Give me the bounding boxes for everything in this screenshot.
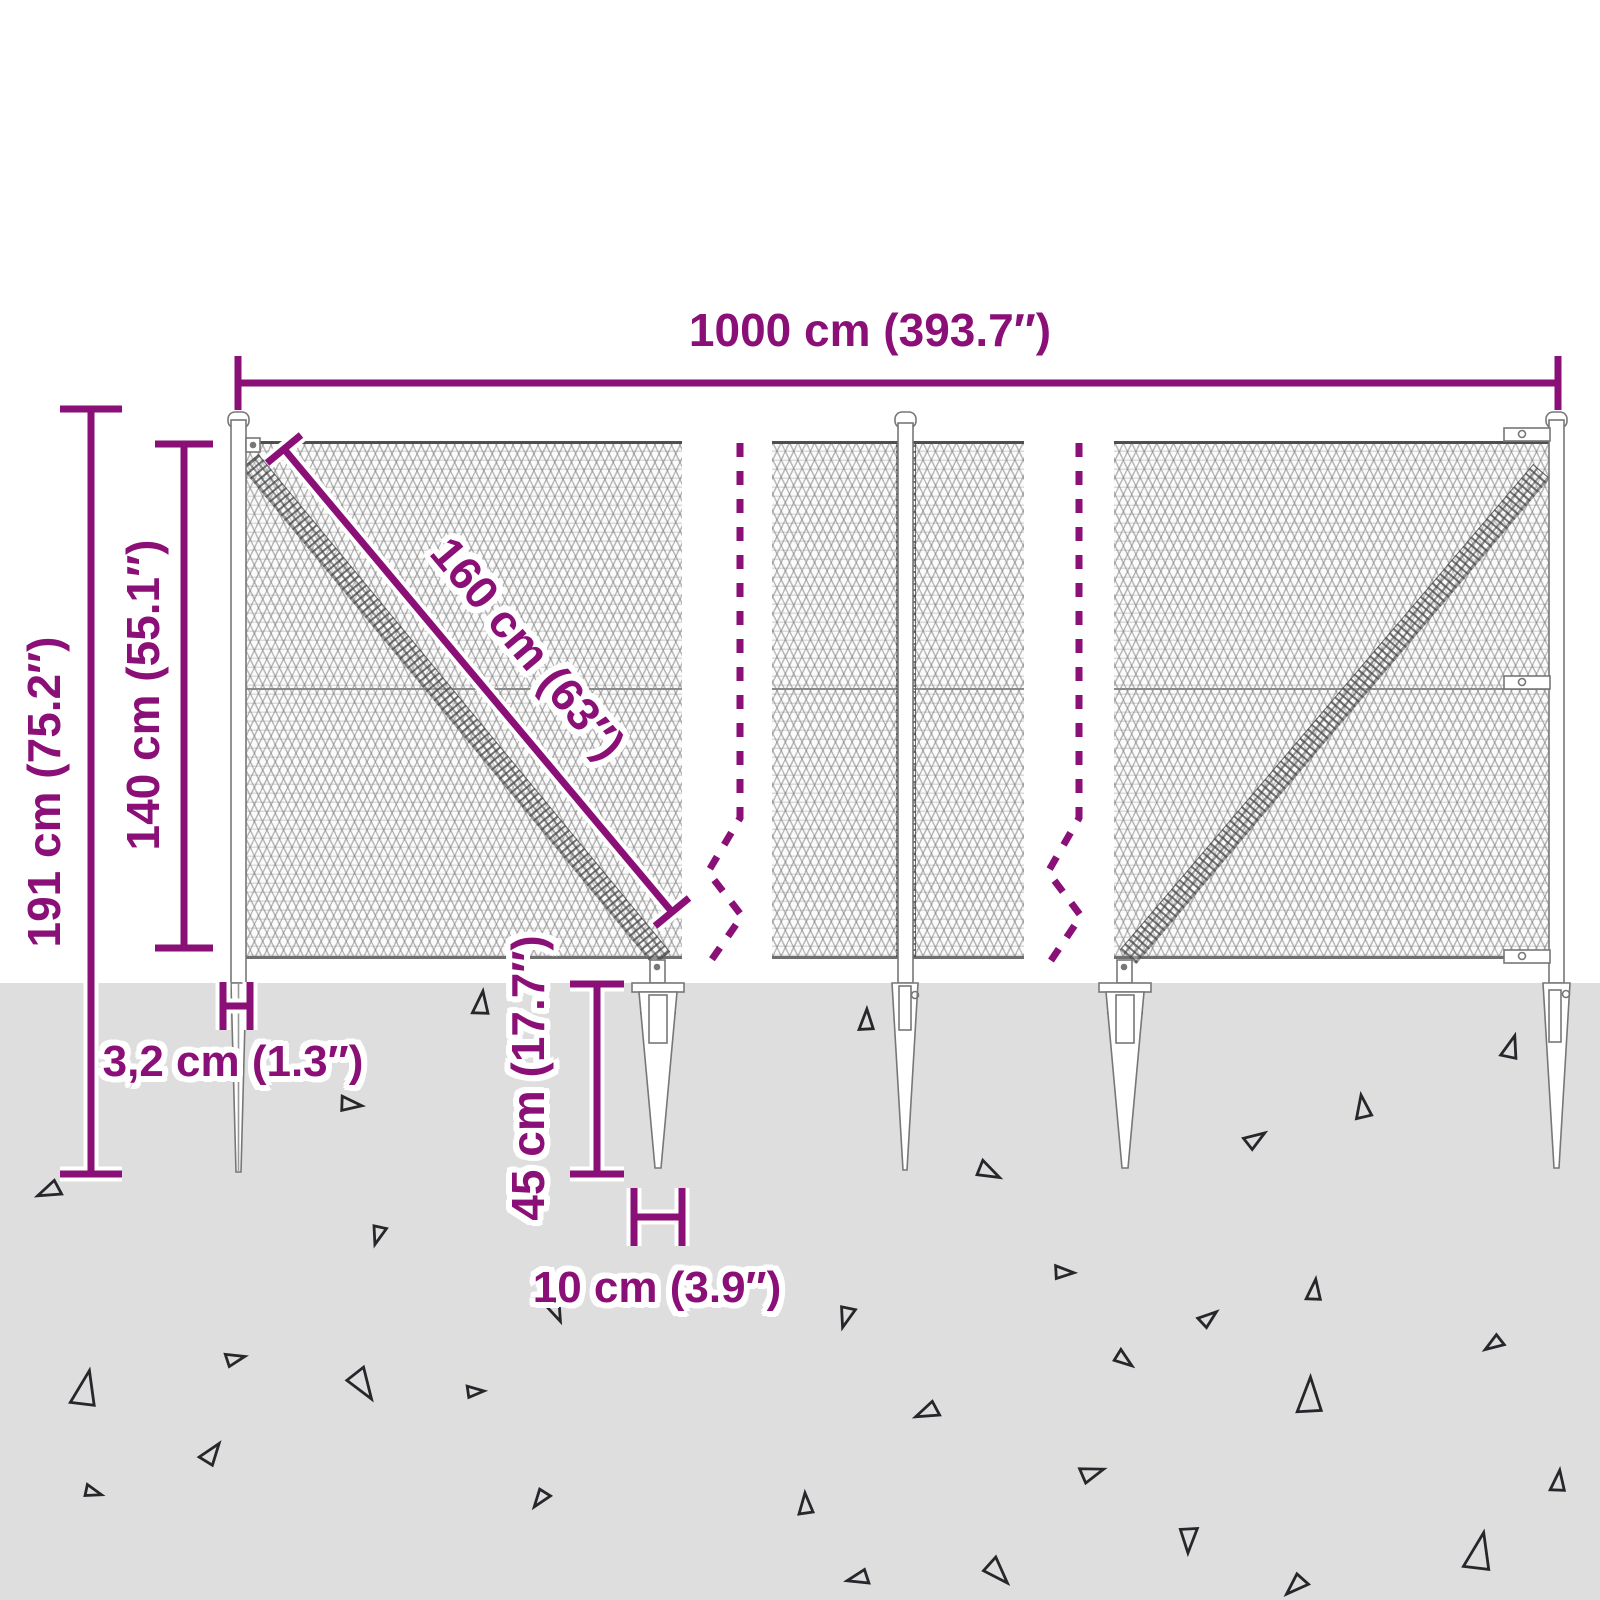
dimension-lines	[0, 0, 1600, 1600]
diagram-canvas: 1000 cm (393.7″) 191 cm (75.2″) 140 cm (…	[0, 0, 1600, 1600]
dim-line-spike-depth	[570, 984, 624, 1174]
label-mesh-height: 140 cm (55.1″)	[116, 540, 170, 851]
label-spike-spacing: 10 cm (3.9″)	[533, 1263, 782, 1313]
break-line-left	[708, 443, 742, 962]
label-total-height: 191 cm (75.2″)	[17, 637, 71, 948]
dim-line-diagonal	[267, 435, 689, 926]
break-line-right	[1048, 443, 1081, 962]
label-post-width: 3,2 cm (1.3″)	[103, 1037, 364, 1087]
label-spike-depth: 45 cm (17.7″)	[501, 935, 555, 1220]
label-total-width: 1000 cm (393.7″)	[689, 303, 1051, 357]
dim-line-total-width	[238, 356, 1558, 410]
